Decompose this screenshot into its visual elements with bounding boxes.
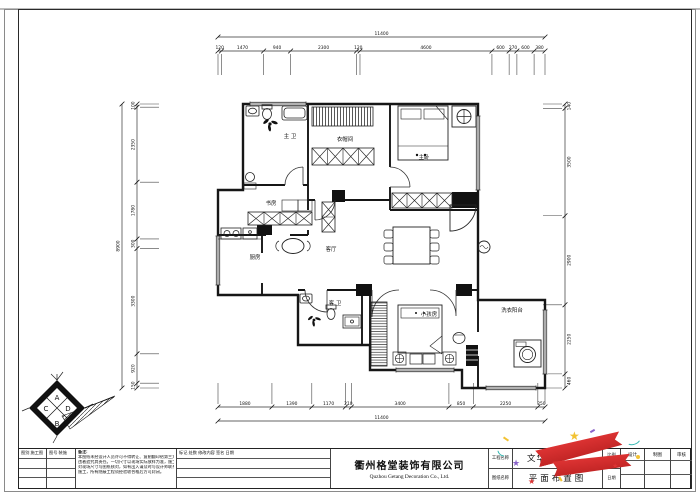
drawing-label: 图纸名称 [489, 469, 512, 489]
designer-column: 设计 [621, 449, 645, 488]
dimension-label: 2350 [130, 139, 136, 150]
room-label: 客 卫 [329, 299, 342, 307]
dimension-label: 1470 [237, 45, 248, 51]
drafter-column: 制图 [645, 449, 671, 488]
logo-letter: B [55, 420, 60, 428]
dimension-label: 1880 [239, 401, 250, 407]
dimension-label: 4600 [420, 45, 431, 51]
dimension-label: 2900 [567, 254, 573, 265]
logo-letter: D [65, 405, 70, 413]
project-label: 工程名称 [489, 449, 512, 469]
sheet-type-column: 图别 施工图 [19, 449, 47, 488]
sheet-no-header: 图号 装施 [47, 449, 75, 459]
dimension-label: 460 [567, 377, 573, 386]
exhaust-fan-icon [262, 118, 278, 131]
study-furniture [244, 173, 312, 226]
dimension-label: 940 [273, 45, 282, 51]
floor-plan: 1201470940230012046006002706003801140018… [0, 0, 700, 448]
checker-header: 审核 [671, 449, 692, 461]
notes-cell: 备注: 本图纸未经设计人员许可不得转让、复制翻印给第三方或用于其他项目， 违者追… [76, 449, 177, 488]
dimension-label: 150 [130, 381, 136, 390]
room-label: 客厅 [326, 245, 337, 253]
dimension-label: 120 [354, 45, 363, 51]
name-labels-column: 工程名称 图纸名称 [489, 449, 513, 488]
room-label: 小孩房 [421, 310, 437, 318]
laundry-balcony-fixtures [466, 340, 541, 367]
project-name: 文华园 [513, 449, 602, 469]
dimension-label: 11400 [375, 415, 389, 421]
dimension-label: 380 [535, 45, 544, 51]
dimension-label: 2250 [500, 401, 511, 407]
room-label: 衣帽间 [337, 135, 353, 143]
company-name-cn: 衢州格堂装饰有限公司 [355, 457, 465, 472]
drawing-name: 平面布置图 [513, 469, 602, 489]
master-bath-fixtures [246, 105, 307, 132]
date-label: 日期 [607, 475, 615, 480]
dimension-label: 920 [130, 364, 136, 373]
kids-room-furniture [371, 302, 465, 366]
dimension-label: 3300 [130, 295, 136, 306]
dimension-label: 1170 [323, 401, 334, 407]
washing-machine-icon [514, 340, 541, 367]
dimension-label: 2250 [567, 334, 573, 345]
dimension-annotations: 1201470940230012046006002706003801140018… [115, 31, 572, 424]
room-label: 主卧 [419, 153, 430, 161]
scale-value: 1:100 [606, 458, 616, 463]
drafter-header: 制图 [645, 449, 670, 461]
sheet-type-header: 图别 施工图 [19, 449, 46, 459]
names-column: 文华园 平面布置图 [513, 449, 603, 488]
dimension-label: 600 [521, 45, 530, 51]
dimension-label: 300 [130, 239, 136, 248]
dimension-label: 600 [496, 45, 505, 51]
dimension-label: 850 [457, 401, 466, 407]
guest-bath-fixtures [300, 294, 361, 328]
revision-header: 标记 处数 修改内容 签名 日期 [177, 449, 330, 459]
company-cell: 衢州格堂装饰有限公司 Quzhou Getang Decoration Co.,… [331, 449, 489, 488]
room-label: 厨房 [250, 253, 261, 261]
exhaust-fan-icon [307, 315, 321, 327]
dimension-label: 11400 [375, 31, 389, 37]
scale-date-column: 比例 1:100 日期 [603, 449, 621, 488]
dimension-label: 1390 [286, 401, 297, 407]
logo-letter: A [55, 394, 60, 402]
dimension-label: 120 [216, 45, 225, 51]
designer-header: 设计 [621, 449, 644, 461]
room-label: 主 卫 [284, 132, 297, 140]
company-name-en: Quzhou Getang Decoration Co., Ltd. [370, 474, 450, 480]
kitchen-fixtures [218, 228, 262, 239]
dimension-label: 1780 [130, 205, 136, 216]
wall-blocks [257, 190, 478, 296]
speaker-icon [393, 352, 406, 365]
dimension-label: 2300 [318, 45, 329, 51]
room-label: 洗衣阳台 [501, 306, 523, 314]
dimension-label: 250 [537, 401, 546, 407]
speaker-icon [443, 352, 456, 365]
shoe-cabinet [466, 345, 478, 366]
dimension-label: 3400 [395, 401, 406, 407]
ac-unit-icon [452, 106, 476, 127]
logo-letter: C [44, 405, 49, 413]
dimension-label: 270 [509, 45, 518, 51]
company-logo: A D B C [22, 372, 115, 443]
cad-sheet: 1201470940230012046006002706003801140018… [0, 0, 700, 494]
cloakroom-cabinets [312, 107, 374, 165]
stool [453, 333, 465, 344]
notes-line: 施工，所有隐蔽工程须经验收合格后方可封闭。 [78, 470, 174, 475]
checker-column: 审核 [671, 449, 692, 488]
dimension-label: 3500 [567, 156, 573, 167]
revision-table: 标记 处数 修改内容 签名 日期 [177, 449, 331, 488]
sheet-no-column: 图号 装施 [47, 449, 76, 488]
scale-label: 比例 [607, 452, 615, 457]
dimension-label: 8900 [115, 240, 121, 251]
room-label: 书房 [266, 199, 277, 207]
lounge-chair [450, 205, 476, 231]
title-block: 图别 施工图 图号 装施 备注: 本图纸未经设计人员许可不得转让、复制翻印给第三… [18, 448, 691, 489]
